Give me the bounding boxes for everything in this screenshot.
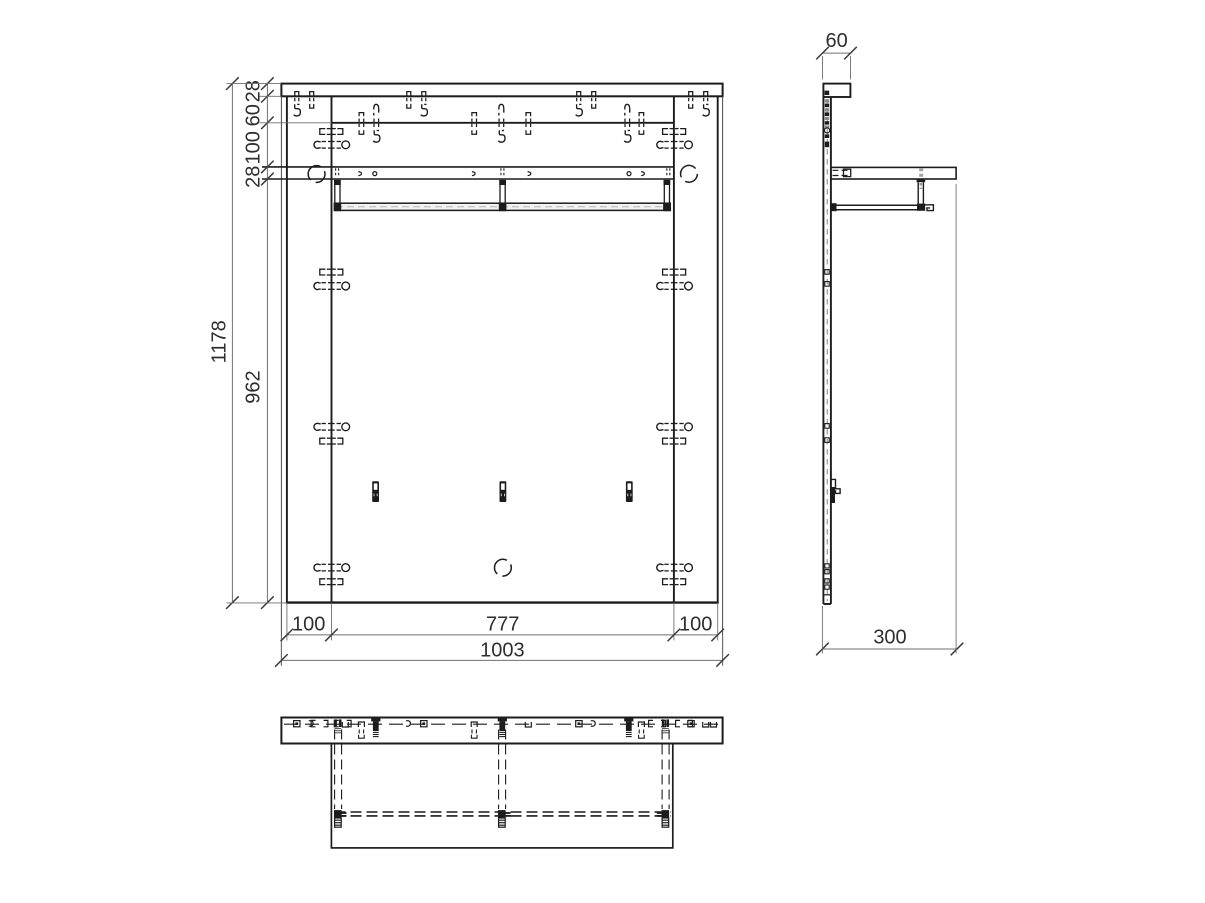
svg-text:777: 777 <box>486 613 519 635</box>
svg-text:962: 962 <box>243 370 265 403</box>
svg-text:100: 100 <box>292 613 325 635</box>
svg-text:100: 100 <box>243 131 265 164</box>
svg-text:1003: 1003 <box>480 639 525 661</box>
svg-text:1178: 1178 <box>209 320 231 363</box>
svg-text:100: 100 <box>679 613 712 635</box>
svg-text:300: 300 <box>873 627 906 649</box>
svg-text:60: 60 <box>825 30 847 52</box>
svg-text:28: 28 <box>243 166 265 188</box>
